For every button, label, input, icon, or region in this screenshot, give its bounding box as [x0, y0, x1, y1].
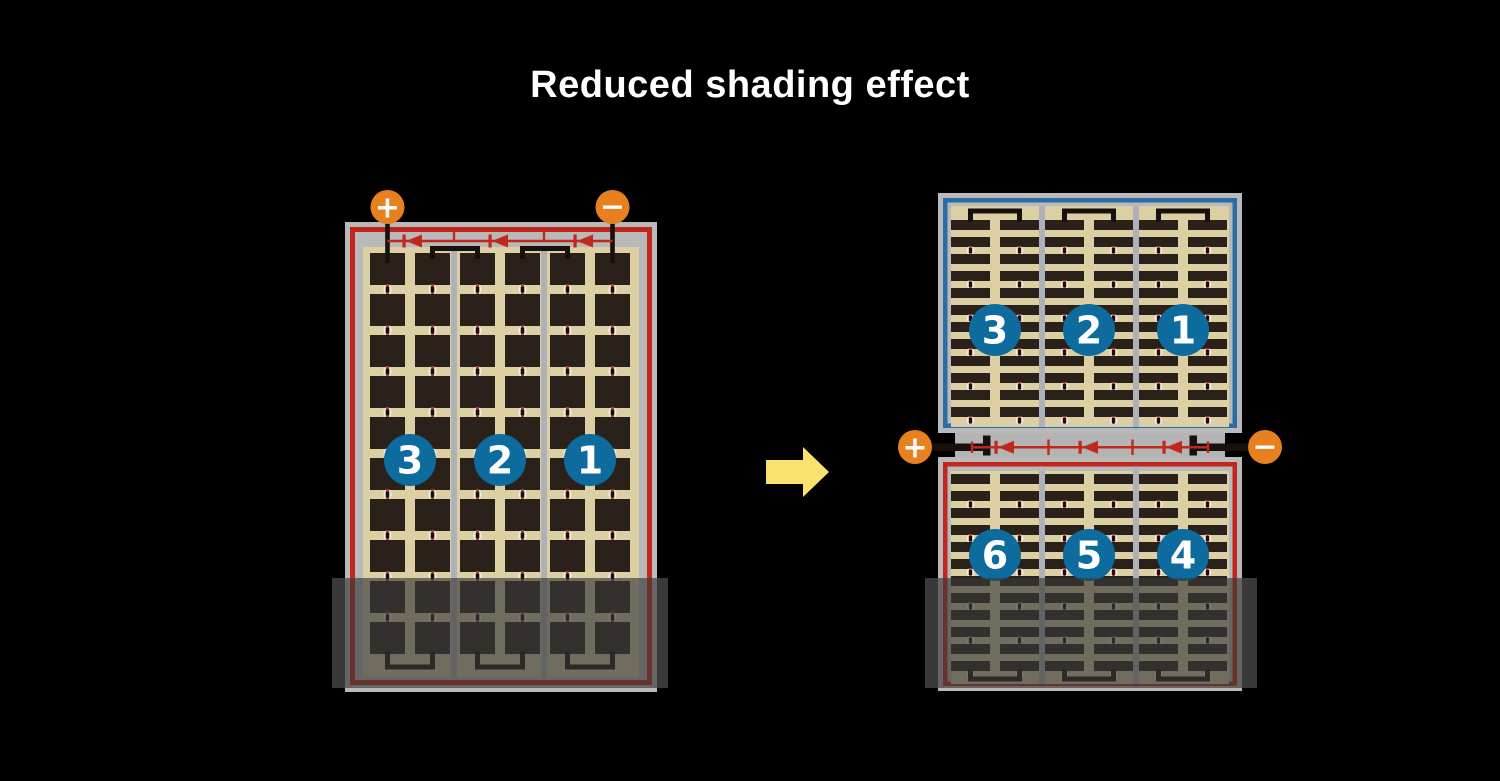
string-badge-5: 5	[1063, 529, 1115, 581]
negative-terminal: −	[1248, 430, 1282, 465]
right-module-diagram: 3 2 1	[880, 180, 1300, 700]
string-badge-label: 3	[982, 309, 1008, 353]
string-badge-label: 6	[982, 534, 1008, 578]
negative-terminal-label: −	[1252, 430, 1277, 465]
upper-half-string-separator	[1039, 206, 1045, 427]
left-module-diagram: + − 3 2 1	[330, 185, 675, 700]
positive-terminal: +	[371, 190, 405, 226]
string-badge-3: 3	[384, 434, 436, 486]
negative-terminal: −	[596, 190, 630, 225]
page-title: Reduced shading effect	[0, 64, 1500, 107]
upper-half-module: 3 2 1	[938, 193, 1242, 433]
shading-overlay	[925, 578, 1257, 688]
string-badge-4: 4	[1157, 529, 1209, 581]
positive-terminal-label: +	[902, 431, 927, 466]
string-badge-1: 1	[564, 434, 616, 486]
string-badge-2: 2	[474, 434, 526, 486]
positive-terminal-label: +	[375, 191, 400, 226]
diagram-stage: Reduced shading effect	[0, 0, 1500, 781]
string-badge-label: 1	[577, 439, 603, 483]
string-badge-label: 2	[1076, 309, 1102, 353]
upper-half-string-separator	[1133, 206, 1139, 427]
positive-terminal: +	[898, 430, 932, 466]
string-badge-3: 3	[969, 304, 1021, 356]
string-badge-1: 1	[1157, 304, 1209, 356]
string-badge-label: 4	[1170, 534, 1196, 578]
string-badge-label: 3	[397, 439, 423, 483]
negative-terminal-label: −	[600, 190, 625, 225]
string-badge-label: 1	[1170, 309, 1196, 353]
string-badge-6: 6	[969, 529, 1021, 581]
shading-overlay	[332, 578, 668, 688]
string-badge-label: 5	[1076, 534, 1102, 578]
transition-arrow-icon	[766, 446, 830, 498]
string-badge-2: 2	[1063, 304, 1115, 356]
string-badge-label: 2	[487, 439, 513, 483]
